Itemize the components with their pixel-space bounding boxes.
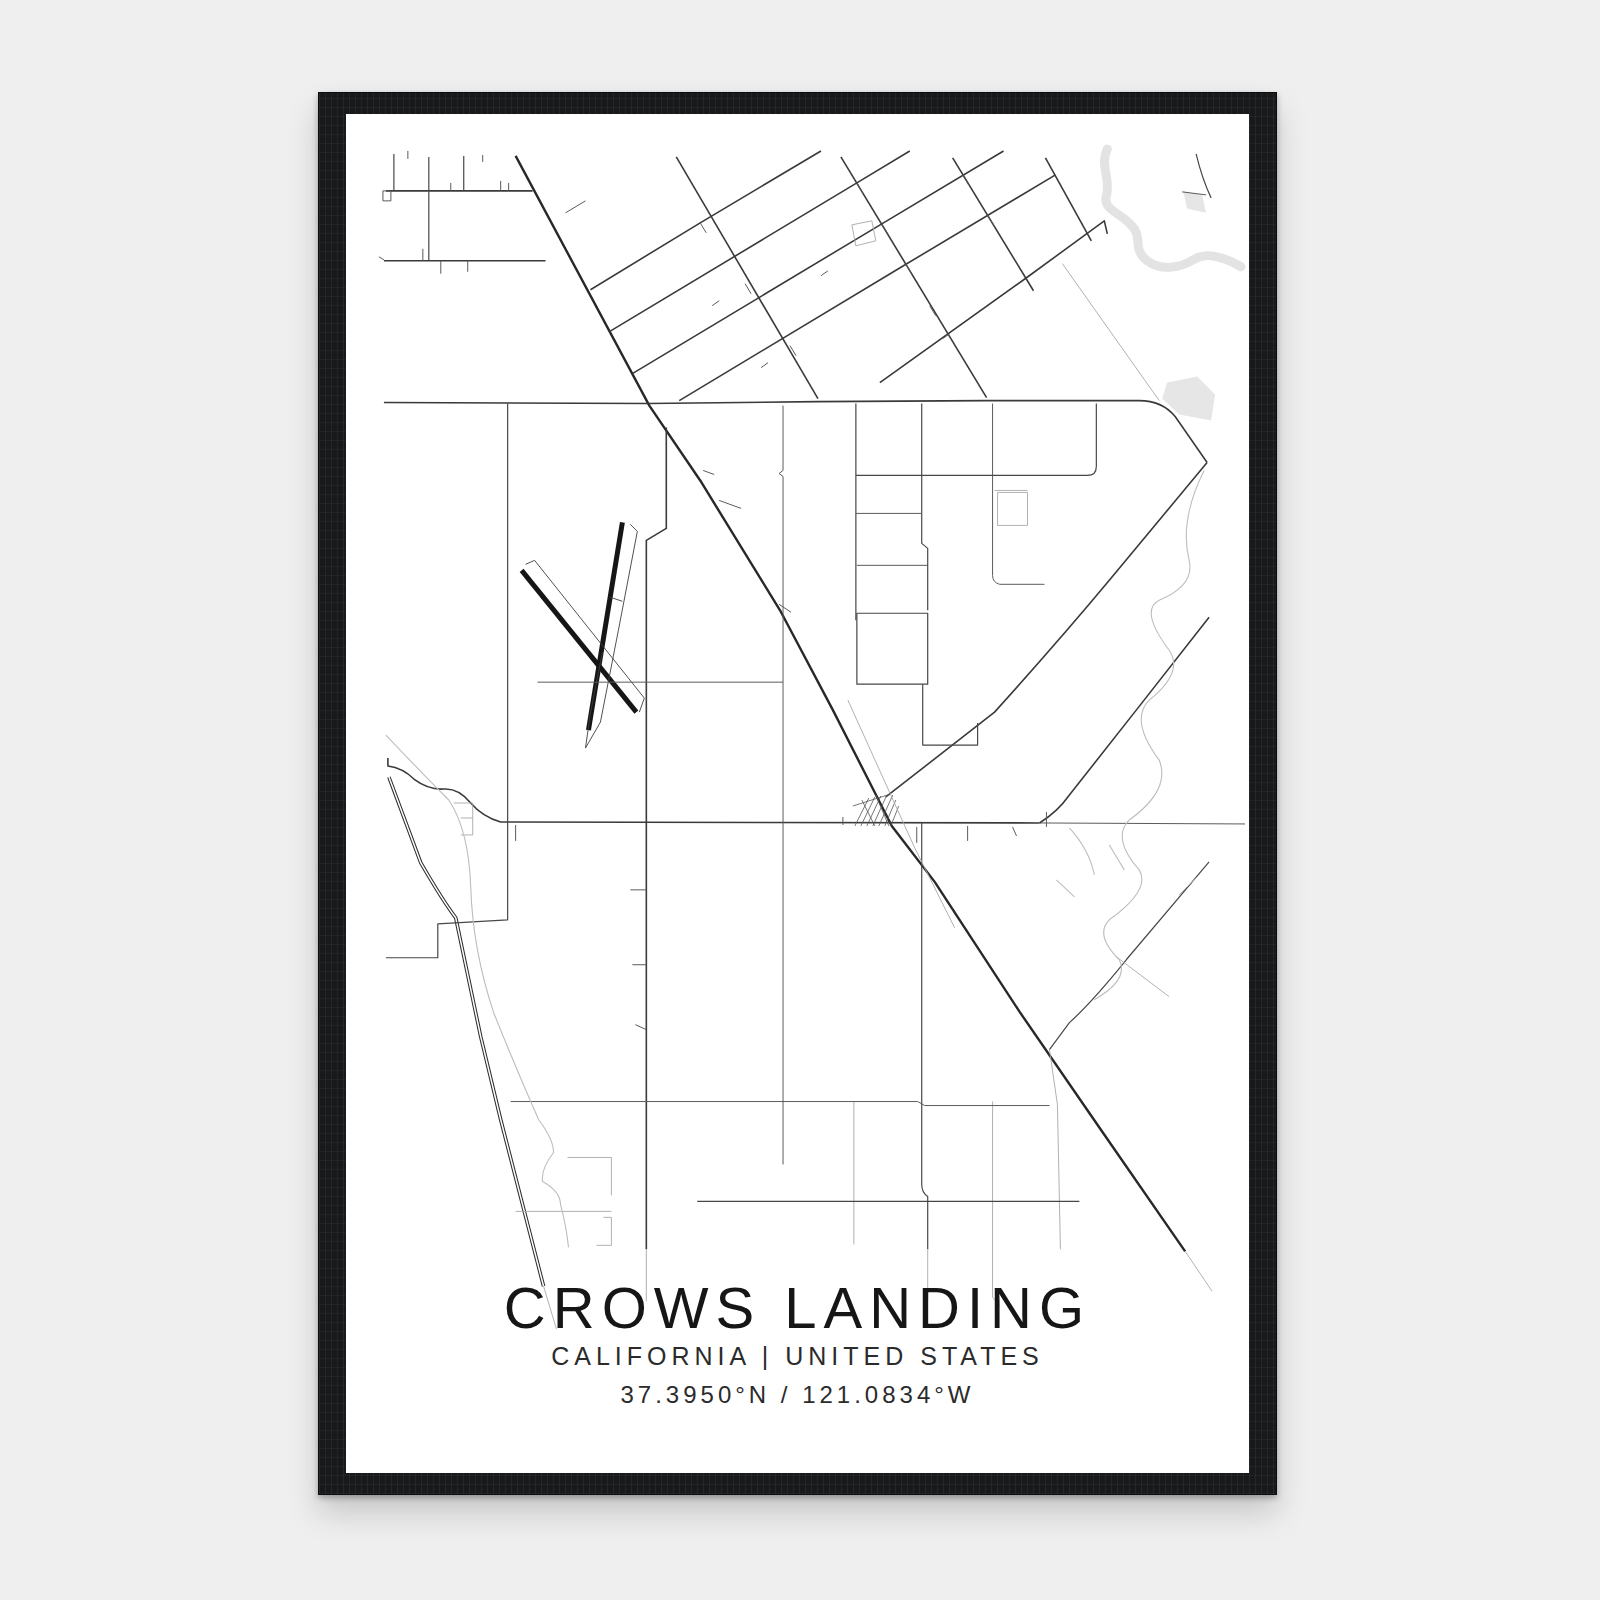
grid-ne-q2 — [841, 157, 987, 398]
highway-spur — [703, 470, 714, 474]
grid-sw-faint — [596, 1217, 611, 1245]
grid-nw-stub — [379, 257, 384, 260]
road-tick — [635, 1025, 646, 1030]
grid-ne-q4 — [1045, 158, 1091, 241]
grid-ne-tick — [857, 183, 863, 193]
grid-nw-square — [383, 191, 391, 201]
creek-twig — [1109, 845, 1124, 870]
highway-spur — [566, 201, 586, 213]
field-square — [998, 492, 1028, 525]
poster-subtitle: CALIFORNIA | UNITED STATES — [346, 1342, 1249, 1371]
road-step — [454, 803, 473, 835]
grid-ne-tick — [745, 284, 751, 294]
creek-west — [386, 735, 569, 1247]
road-corner-block — [856, 404, 1096, 476]
town-stub — [1013, 827, 1017, 836]
grid-ne-tick — [700, 223, 706, 233]
grid-ne-p2 — [609, 151, 909, 332]
road-main-town-east — [1039, 823, 1245, 824]
poster-frame: CROWS LANDING CALIFORNIA | UNITED STATES… — [318, 92, 1277, 1495]
canal — [389, 777, 544, 1286]
grid-ne-tick — [761, 363, 768, 368]
grid-ne-tick — [906, 264, 912, 274]
town-grid-street — [855, 798, 869, 826]
poster-coordinates: 37.3950°N / 121.0834°W — [346, 1381, 1249, 1409]
creek-east — [1094, 470, 1204, 999]
road-vertical-993 — [993, 404, 1045, 585]
town-grid-cross — [876, 795, 889, 826]
canal-center — [389, 777, 544, 1286]
product-photo: CROWS LANDING CALIFORNIA | UNITED STATES… — [0, 0, 1600, 1600]
road-horizontal-1102 — [511, 1102, 1050, 1106]
grid-ne-tick — [790, 346, 796, 356]
railroad-parallel — [848, 700, 955, 928]
road-spur — [1179, 877, 1197, 895]
road-northeast-1 — [886, 462, 1207, 797]
grid-ne-faint-street — [1062, 264, 1159, 401]
grid-ne-tick — [963, 175, 969, 185]
poster-title: CROWS LANDING — [346, 1274, 1249, 1341]
grid-sw-faint — [568, 1157, 612, 1195]
grid-ne-tick — [882, 224, 888, 234]
grid-ne-p3 — [632, 151, 1003, 374]
grid-ne-building — [852, 221, 876, 246]
road-vertical-922 — [922, 404, 928, 611]
runway-2 — [522, 570, 637, 712]
grid-ne-p5 — [880, 221, 1107, 383]
grid-ne-p1 — [590, 151, 820, 290]
grid-ne-tick — [712, 301, 719, 306]
river-pond — [1162, 377, 1215, 421]
highway — [516, 156, 1186, 1251]
road-northeast-3-south — [1049, 1050, 1060, 1250]
road-hook-ne — [1196, 154, 1211, 198]
grid-ne-p4 — [679, 175, 1055, 401]
road-vertical-center — [646, 428, 666, 1250]
creek-twig — [1069, 828, 1094, 875]
town-grid-edge — [853, 794, 891, 806]
runway-taxiway — [526, 560, 645, 712]
road-block — [857, 613, 928, 684]
grid-ne-tick — [988, 215, 994, 225]
map-svg — [346, 114, 1249, 1473]
road-vertical-783 — [779, 406, 783, 1165]
road-northeast-2 — [1039, 617, 1209, 823]
road-vertical-922-south — [922, 823, 928, 1249]
road-main-town — [388, 758, 1040, 823]
road-block — [923, 684, 978, 745]
creek-twig — [1056, 880, 1074, 897]
river — [1104, 149, 1241, 267]
highway-spur — [719, 500, 741, 508]
road-vertical-west — [386, 404, 508, 958]
grid-ne-q1 — [676, 157, 818, 399]
road-northeast-3 — [1049, 862, 1209, 1050]
grid-ne-tick — [821, 271, 828, 276]
poster-paper: CROWS LANDING CALIFORNIA | UNITED STATES… — [346, 114, 1249, 1473]
road-spur — [1116, 957, 1169, 997]
